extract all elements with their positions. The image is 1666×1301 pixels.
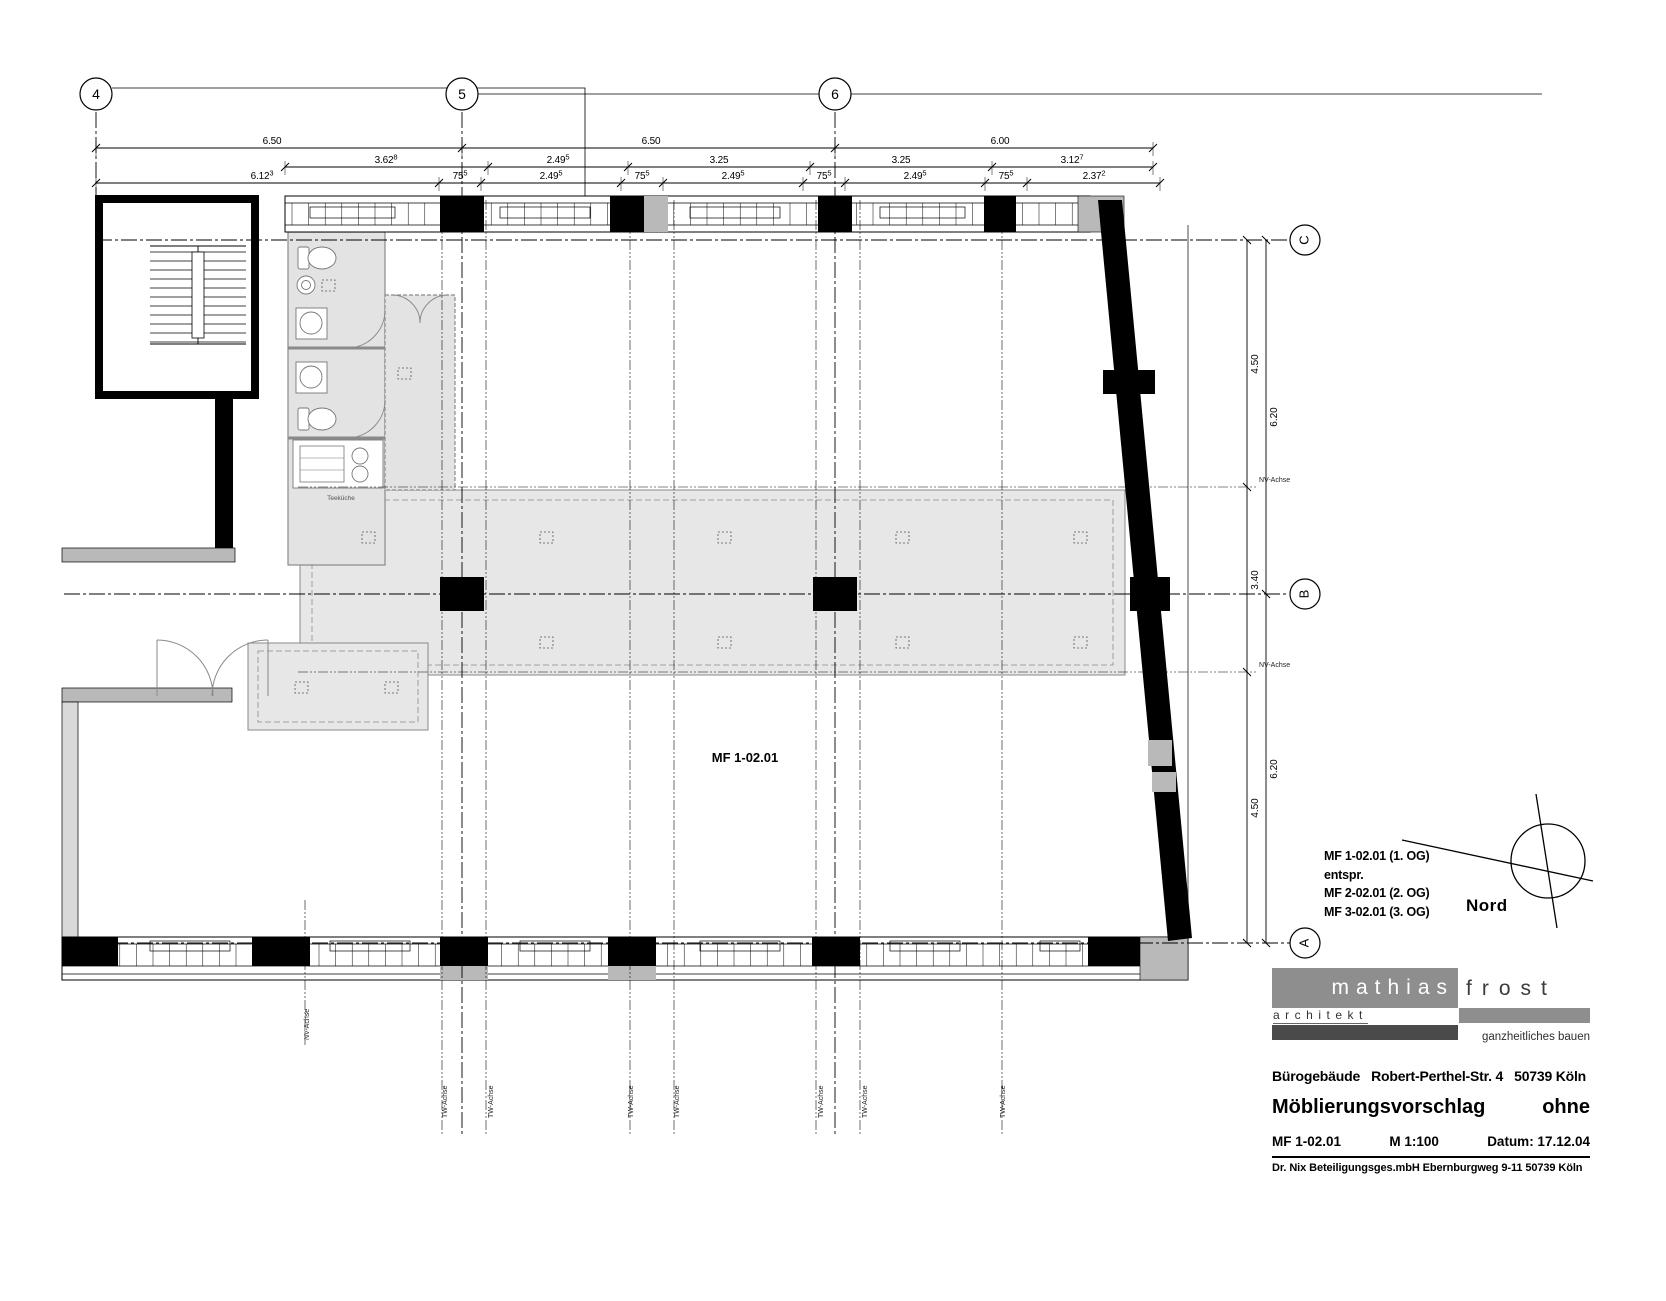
drawing-subject-variant: ohne	[1542, 1096, 1590, 1119]
dimension-label: 4.50	[1250, 798, 1261, 818]
sink-fixture	[296, 308, 327, 339]
dimension-label: 3.628	[375, 153, 398, 167]
facade-top	[285, 196, 1124, 232]
dimension-label: 6.00	[991, 136, 1010, 147]
grid-bubble-label: A	[1296, 938, 1311, 947]
room-label: MF 1-02.01	[712, 750, 778, 765]
dimension-label: 3.25	[710, 155, 729, 166]
dimension-label: 6.20	[1269, 407, 1280, 427]
client-line: Dr. Nix Beteiligungsges.mbH Ebernburgweg…	[1272, 1162, 1590, 1174]
toilet-fixture	[298, 247, 336, 269]
dimension-label: 2.495	[540, 169, 563, 183]
logo-profession: architekt	[1273, 1008, 1368, 1024]
logo-name-left: mathias	[1272, 968, 1458, 1008]
dimension-label: 4.50	[1250, 354, 1261, 374]
dimension-label: 755	[635, 169, 650, 183]
logo-tagline: ganzheitliches bauen	[1449, 1031, 1590, 1043]
urinal-fixture	[297, 276, 315, 294]
kitchen-label: Teeküche	[327, 495, 355, 502]
grid-bubble-label: 6	[831, 86, 839, 102]
legend-line: MF 2-02.01 (2. OG)	[1324, 884, 1429, 903]
dimension-label: 3.25	[892, 155, 911, 166]
axis-label: TW-Achse	[862, 1085, 869, 1118]
logo-name-right: frost	[1466, 968, 1557, 1008]
floor-legend: MF 1-02.01 (1. OG) entspr. MF 2-02.01 (2…	[1324, 847, 1429, 921]
dimension-label: 3.40	[1250, 570, 1261, 590]
axis-label: TW-Achse	[488, 1085, 495, 1118]
dimension-label: 2.495	[547, 153, 570, 167]
legend-line: entspr.	[1324, 866, 1429, 885]
grid-bubble-label: 5	[458, 86, 466, 102]
kitchen-counter	[293, 440, 383, 488]
drawing-scale: M 1:100	[1389, 1134, 1439, 1149]
project-address: Bürogebäude Robert-Perthel-Str. 4 50739 …	[1272, 1068, 1590, 1084]
axis-label: NV-Achse	[1259, 662, 1290, 669]
dimension-label: 755	[999, 169, 1014, 183]
dimension-label: 6.50	[263, 136, 282, 147]
legend-line: MF 1-02.01 (1. OG)	[1324, 847, 1429, 866]
dimension-label: 3.127	[1061, 153, 1084, 167]
dimension-label: 6.123	[251, 169, 274, 183]
dimension-label: 755	[817, 169, 832, 183]
dimension-label: 2.495	[904, 169, 927, 183]
drawing-subject: Möblierungsvorschlag	[1272, 1096, 1485, 1119]
sink-fixture	[296, 362, 327, 393]
toilet-fixture	[298, 408, 336, 430]
dimension-label: 755	[453, 169, 468, 183]
axis-label: TW-Achse	[818, 1085, 825, 1118]
grid-bubble-label: 4	[92, 86, 100, 102]
dimension-label: 2.495	[722, 169, 745, 183]
left-walls	[62, 395, 268, 938]
dimension-label: 6.50	[642, 136, 661, 147]
axis-label: NV-Achse	[1259, 477, 1290, 484]
drawing-date: Datum: 17.12.04	[1487, 1134, 1590, 1149]
dimension-label: 2.372	[1083, 169, 1106, 183]
dimension-label: 6.20	[1269, 759, 1280, 779]
logo-bar-right	[1459, 1008, 1590, 1023]
legend-line: MF 3-02.01 (3. OG)	[1324, 903, 1429, 922]
axis-label: TW-Achse	[628, 1085, 635, 1118]
drawing-number: MF 1-02.01	[1272, 1134, 1341, 1149]
staircase	[99, 199, 255, 395]
grid-bubble-label: B	[1296, 590, 1311, 599]
axis-label: TW-Achse	[674, 1085, 681, 1118]
axis-label: TW-Achse	[1000, 1085, 1007, 1118]
logo-bar-dark	[1272, 1025, 1458, 1040]
title-block-rule	[1272, 1156, 1590, 1158]
axis-label: NV-Achse	[304, 1009, 311, 1040]
drawing-sheet: 6.506.506.003.6282.4953.253.253.1276.123…	[0, 0, 1666, 1301]
north-label: Nord	[1466, 896, 1508, 916]
axis-label: TW-Achse	[442, 1085, 449, 1118]
grid-bubble-label: C	[1296, 235, 1311, 244]
